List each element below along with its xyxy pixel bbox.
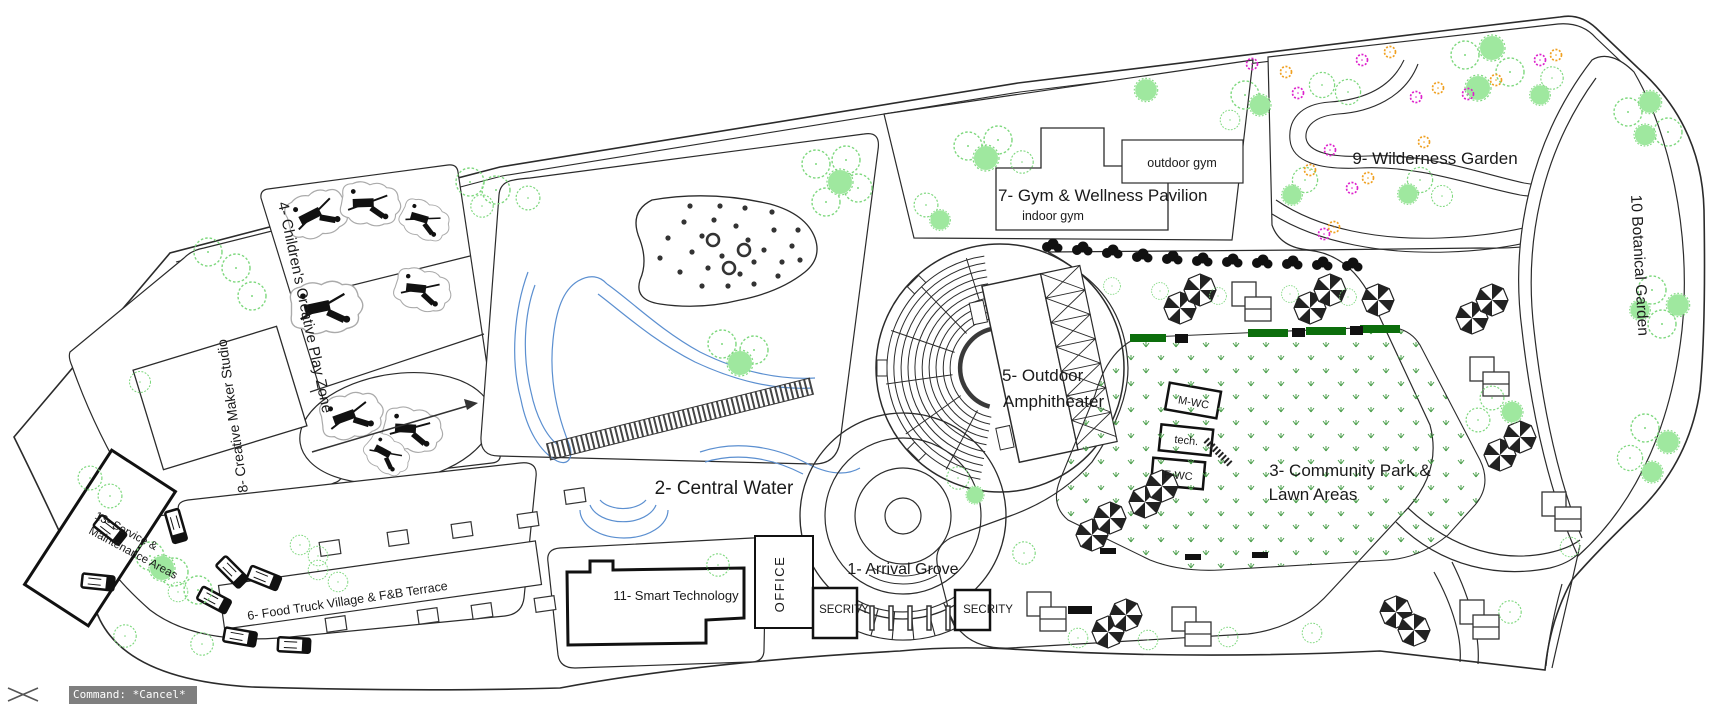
cad-viewport[interactable]: 1- Arrival Grove 2- Central Water 3- Com…	[0, 0, 1721, 704]
zone-label-amphitheater-1: 5- Outdoor	[1002, 366, 1084, 385]
command-line-text: Command: *Cancel*	[73, 688, 186, 701]
ucs-icon	[8, 688, 38, 701]
zone-label-smart-tech: 11- Smart Technology	[613, 588, 739, 603]
label-wc-female: F-WC	[1163, 469, 1193, 483]
zone-label-community-park-1: 3- Community Park &	[1269, 461, 1431, 480]
zone-label-wilderness: 9- Wilderness Garden	[1352, 149, 1517, 168]
zone-label-community-park-2: Lawn Areas	[1269, 485, 1358, 504]
zone-label-central-water: 2- Central Water	[655, 478, 794, 499]
site-plan-drawing[interactable]: 1- Arrival Grove 2- Central Water 3- Com…	[0, 0, 1721, 704]
label-indoor-gym: indoor gym	[1022, 209, 1084, 223]
command-line-bar[interactable]: Command: *Cancel*	[69, 686, 197, 704]
label-wc-tech: tech.	[1174, 434, 1199, 448]
label-office: OFFICE	[772, 556, 787, 613]
label-outdoor-gym: outdoor gym	[1147, 156, 1216, 170]
zone-label-arrival: 1- Arrival Grove	[847, 561, 958, 578]
label-security-right: SECRITY	[963, 604, 1013, 616]
zone-label-amphitheater-2: Amphitheater	[1003, 392, 1104, 411]
zone-label-gym: 7- Gym & Wellness Pavilion	[998, 186, 1207, 205]
label-security-left: SECRITY	[819, 604, 869, 616]
